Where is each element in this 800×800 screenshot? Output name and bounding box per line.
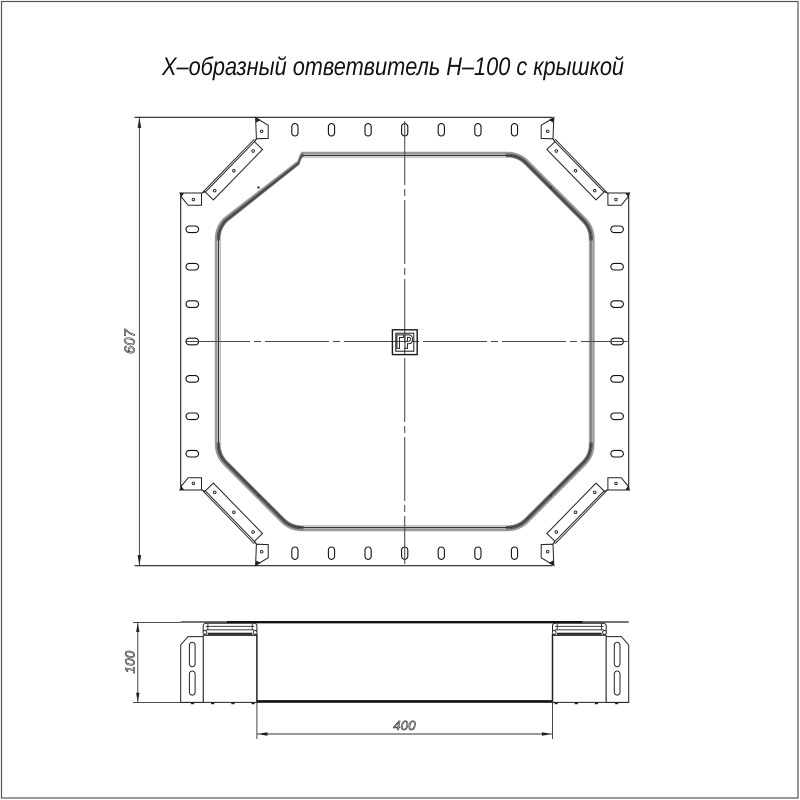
svg-text:607: 607 xyxy=(122,328,138,354)
svg-text:400: 400 xyxy=(393,718,416,733)
svg-text:Х–образный ответвитель Н–100 с: Х–образный ответвитель Н–100 с крышкой xyxy=(161,53,624,81)
svg-text:100: 100 xyxy=(122,650,137,673)
